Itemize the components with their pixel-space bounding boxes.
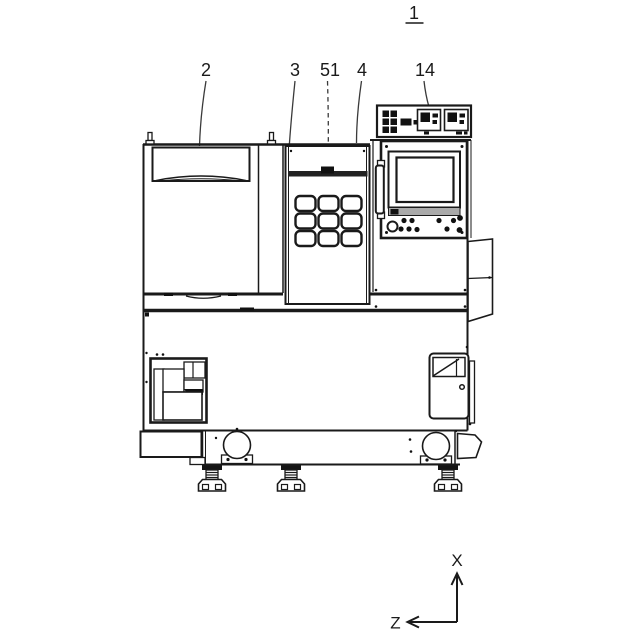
leveling-foot-left — [199, 466, 226, 492]
caster-wheel-right — [421, 433, 452, 465]
axis-x-label: X — [451, 551, 462, 570]
door-handle — [321, 167, 334, 174]
label-ref-1: 1 — [409, 3, 419, 23]
eyebolt-right — [268, 133, 276, 145]
key-bar — [401, 119, 412, 126]
label-ref-4: 4 — [357, 60, 367, 80]
axis-indicator: X Z — [390, 551, 462, 633]
base-step-bracket — [190, 458, 205, 465]
panel-side-handle — [376, 161, 385, 219]
door-window-grid — [296, 196, 362, 246]
label-ref-51: 51 — [320, 60, 340, 80]
label-ref-14: 14 — [415, 60, 435, 80]
indicator-display-right — [445, 110, 469, 131]
leader-line-2 — [200, 81, 207, 146]
label-ref-3: 3 — [290, 60, 300, 80]
operation-panel — [376, 106, 471, 239]
label-ref-2: 2 — [201, 60, 211, 80]
left-cover — [153, 148, 250, 182]
leveling-foot-center — [278, 466, 305, 492]
screen — [397, 158, 454, 203]
caster-wheel-left — [222, 432, 253, 464]
machine-base — [141, 431, 482, 491]
chip-conveyor-unit — [151, 353, 207, 422]
band-tab — [391, 209, 399, 215]
leader-line-4 — [357, 81, 362, 143]
indicator-display-left — [418, 110, 441, 131]
front-door — [286, 146, 370, 304]
leveling-foot-right — [435, 466, 462, 492]
leader-line-14 — [424, 81, 429, 107]
eyebolt-left — [146, 133, 154, 145]
emergency-stop-button — [388, 222, 398, 232]
screen-lower-band — [389, 208, 461, 216]
base-left-panel — [141, 432, 202, 458]
patent-figure: 1 2 3 51 4 14 — [0, 0, 640, 640]
axis-z-label: Z — [390, 614, 400, 633]
door-hinge-strip — [470, 361, 475, 423]
side-wing — [468, 239, 493, 322]
machine-tool-drawing: 1 2 3 51 4 14 — [0, 0, 640, 640]
base-corner-bracket — [458, 434, 482, 459]
